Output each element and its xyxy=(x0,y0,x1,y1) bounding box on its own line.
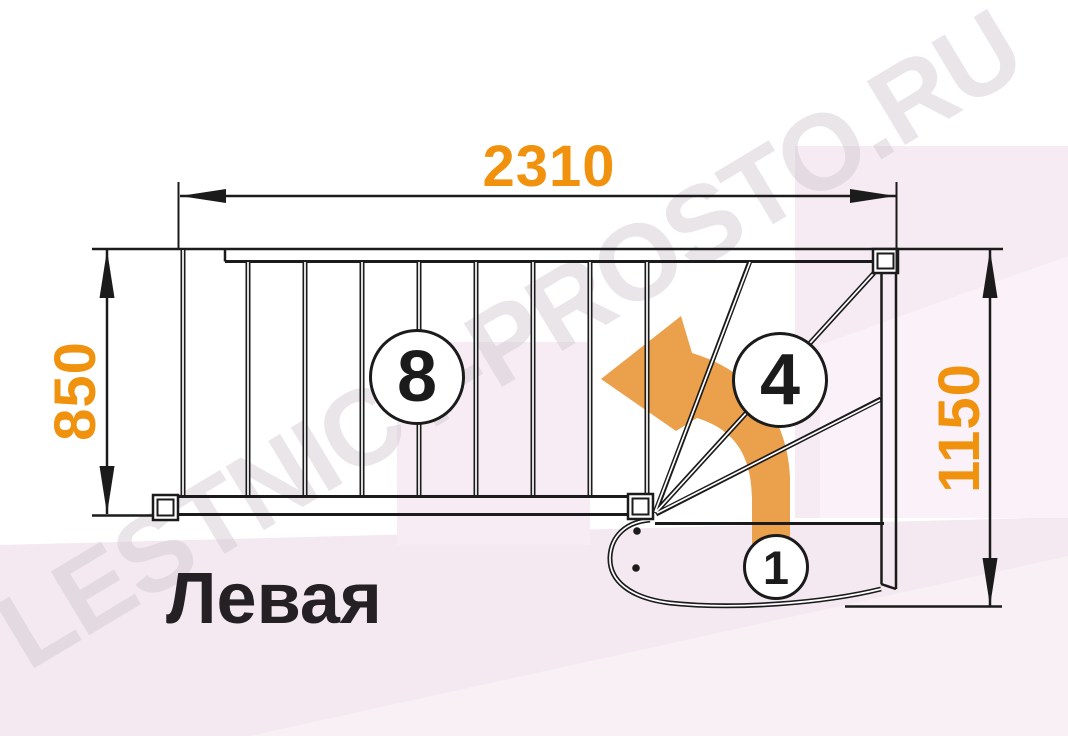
first-step-dowel-dot xyxy=(633,527,641,535)
step-marker-first-step: 1 xyxy=(743,534,809,600)
step-marker-label: 4 xyxy=(760,344,800,416)
stair-plan-diagram: LESTNICY-PROSTO.RU xyxy=(0,0,1068,736)
newel-post-top-right xyxy=(873,249,898,273)
step-marker-label: 1 xyxy=(763,544,789,591)
bottom-stringer xyxy=(165,497,640,515)
step-marker-straight-flight: 8 xyxy=(369,329,465,425)
plan-title: Левая xyxy=(166,563,382,635)
dim-arrowhead-down xyxy=(100,466,115,514)
dim-arrowhead-down xyxy=(983,558,998,606)
step-marker-winders: 4 xyxy=(732,332,828,428)
dim-arrowhead-right xyxy=(850,189,896,203)
newel-post-bottom-left xyxy=(153,495,178,520)
dim-arrowhead-up xyxy=(983,250,998,298)
newel-post-center xyxy=(628,494,653,519)
dimension-label-total-length: 2310 xyxy=(482,138,615,196)
dim-arrowhead-up xyxy=(100,250,115,298)
step-marker-label: 8 xyxy=(397,341,437,413)
dim-arrowhead-left xyxy=(180,189,226,203)
stair-plan-linework xyxy=(0,0,1068,736)
dimension-label-flight-width: 850 xyxy=(47,341,105,441)
first-step-dowel-dot xyxy=(632,564,640,572)
dimension-label-turn-width: 1150 xyxy=(931,363,989,493)
right-stringer xyxy=(881,273,896,589)
